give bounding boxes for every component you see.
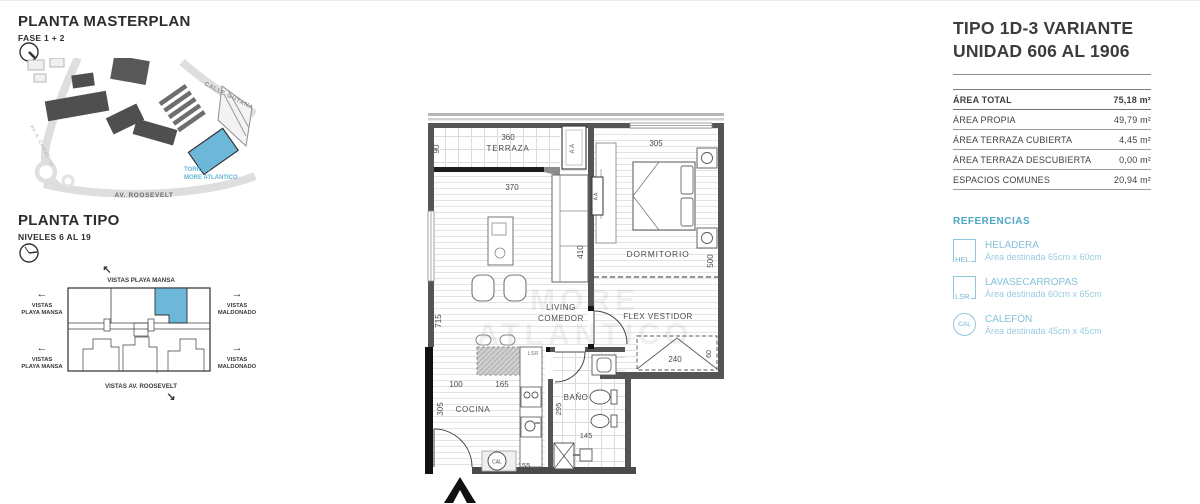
arrow-up-left-icon: ↖ [102,264,111,276]
fridge-icon: HEL [953,239,976,262]
room-label-bano: BAÑO [564,393,589,402]
laundry-area [477,347,523,375]
sofa [552,175,588,282]
map-buildings [28,58,252,175]
dim-cocina-3: 155 [518,461,531,470]
room-label-living-1: LIVING [546,303,576,312]
info-panel: TIPO 1D-3 VARIANTE UNIDAD 606 AL 1906 ÁR… [953,17,1151,349]
arrow-down-right-icon: ↘ [166,391,175,403]
room-label-cocina: COCINA [456,405,491,414]
toilet [590,390,610,404]
terrace-railing [434,167,544,172]
vista-labels: ↖ VISTAS PLAYA MANSA ← VISTAS PLAYA MANS… [21,264,256,403]
title-divider [953,74,1151,75]
dim-dormitorio-width: 305 [649,139,663,148]
bathroom-accessory [580,449,592,461]
table-row: ESPACIOS COMUNES 20,94 m² [953,170,1151,190]
dim-dormitorio-depth: 500 [706,254,715,268]
ref-name: LAVASECARROPAS [985,276,1102,289]
facade-slab-line [428,118,724,121]
referencia-item-heladera: HEL HELADERA Área destinada 65cm x 60cm [953,239,1151,264]
vistas-top-label: VISTAS PLAYA MANSA [107,277,175,284]
table-row: ÁREA TOTAL 75,18 m² [953,89,1151,110]
dim-cocina-depth: 305 [436,402,445,416]
area-value: 0,00 m² [1119,155,1151,165]
unit-type-title: TIPO 1D-3 VARIANTE [953,17,1151,40]
ref-desc: Área destinada 65cm x 60cm [985,252,1102,264]
ac-unit-label: AA [570,142,576,153]
chair [492,223,506,235]
stove [521,387,541,407]
water-heater-label: CAL [492,460,502,466]
water-heater-icon: CAL [953,313,976,336]
dim-closet-width: 240 [668,355,682,364]
nightstand [697,228,717,248]
street-label-roosevelt: AV. ROOSEVELT [115,192,174,199]
ref-name: HELADERA [985,239,1102,252]
area-label: ÁREA TERRAZA DESCUBIERTA [953,155,1091,165]
dim-living-side: 715 [434,314,443,328]
unit-range-title: UNIDAD 606 AL 1906 [953,40,1151,63]
dim-closet-depth: 60 [706,350,713,358]
pillow [681,166,693,194]
referencias-section: REFERENCIAS HEL HELADERA Área destinada … [953,216,1151,337]
vistas-right-top-2: MALDONADO [218,310,257,316]
closet [637,336,717,370]
dim-living-width: 370 [505,183,519,192]
dim-terraza-depth: 90 [432,144,441,153]
area-label: ÁREA TERRAZA CUBIERTA [953,135,1072,145]
vistas-left-bottom-1: VISTAS [32,357,53,363]
masterplan-title: PLANTA MASTERPLAN [18,13,191,30]
vistas-bottom-label: VISTAS AV. ROOSEVELT [105,383,177,390]
laundry-label: LSR [528,351,539,357]
ref-code: HEL [954,255,971,264]
washer-dryer-icon: LSR [953,276,976,299]
dim-cocina-1: 100 [449,380,463,389]
table-row: ÁREA TERRAZA DESCUBIERTA 0,00 m² [953,150,1151,170]
area-table: ÁREA TOTAL 75,18 m² ÁREA PROPIA 49,79 m²… [953,89,1151,190]
highlighted-unit [155,288,187,323]
vistas-right-top-1: VISTAS [227,303,248,309]
area-value: 75,18 m² [1113,95,1151,105]
area-value: 49,79 m² [1114,115,1151,125]
ref-code: LSR [954,292,971,301]
stool [476,335,491,345]
typical-floor-outline [68,288,210,373]
area-label: ESPACIOS COMUNES [953,175,1050,185]
bidet [591,415,609,428]
arrow-left-icon: ← [37,342,48,354]
referencia-item-lavasecarropas: LSR LAVASECARROPAS Área destinada 60cm x… [953,276,1151,301]
table-row: ÁREA TERRAZA CUBIERTA 4,45 m² [953,130,1151,150]
nightstand [697,148,717,168]
chair [472,275,494,301]
vistas-left-bottom-2: PLAYA MANSA [21,364,63,370]
planta-tipo-title: PLANTA TIPO [18,212,120,229]
vistas-right-bottom-2: MALDONADO [218,364,257,370]
unit-floorplan: AA AA [420,111,732,503]
arrow-left-icon: ← [37,288,48,300]
ref-desc: Área destinada 45cm x 45cm [985,326,1102,338]
referencias-heading: REFERENCIAS [953,216,1151,227]
arrow-right-icon: → [232,288,243,300]
tower-label-line1: TORRE 1 [184,167,211,173]
dim-living-depth: 410 [576,245,585,259]
kitchen-sink [521,417,541,437]
ref-name: CALEFÓN [985,313,1102,326]
area-value: 20,94 m² [1114,175,1151,185]
referencia-item-calefon: CAL CALEFÓN Área destinada 45cm x 45cm [953,313,1151,338]
tower-label-line2: MORE ATLANTICO [184,175,238,181]
ref-code: CAL [958,321,971,328]
area-label: ÁREA TOTAL [953,95,1012,105]
pillow [681,198,693,226]
stool [500,335,515,345]
room-label-living-2: COMEDOR [538,314,584,323]
dim-cocina-2: 165 [495,380,509,389]
chair [504,275,526,301]
area-label: ÁREA PROPIA [953,115,1016,125]
ac-unit-label: AA [594,192,600,201]
dim-bano-width: 145 [580,431,593,440]
vistas-left-top-1: VISTAS [32,303,53,309]
room-label-terraza: TERRAZA [487,144,530,153]
table-row: ÁREA PROPIA 49,79 m² [953,110,1151,130]
room-label-flex: FLEX VESTIDOR [623,312,693,321]
vistas-left-top-2: PLAYA MANSA [21,310,63,316]
facade-slab-line [428,113,724,116]
plan-sheet: PLANTA MASTERPLAN FASE 1 + 2 [0,0,1200,504]
planta-tipo-levels: NIVELES 6 AL 19 [18,232,91,242]
area-value: 4,45 m² [1119,135,1151,145]
masterplan-map: CALLE GUYANA AV. A. CAMACHO AV. ROOSEVEL… [16,58,256,200]
entry-arrow-icon [444,477,476,503]
vistas-right-bottom-1: VISTAS [227,357,248,363]
room-label-dormitorio: DORMITORIO [626,249,689,259]
dim-bano-depth: 295 [554,403,563,416]
dim-terraza-width: 360 [501,133,515,142]
ref-desc: Área destinada 60cm x 65cm [985,289,1102,301]
planta-tipo-diagram: ↖ VISTAS PLAYA MANSA ← VISTAS PLAYA MANS… [8,257,288,407]
arrow-right-icon: → [232,342,243,354]
